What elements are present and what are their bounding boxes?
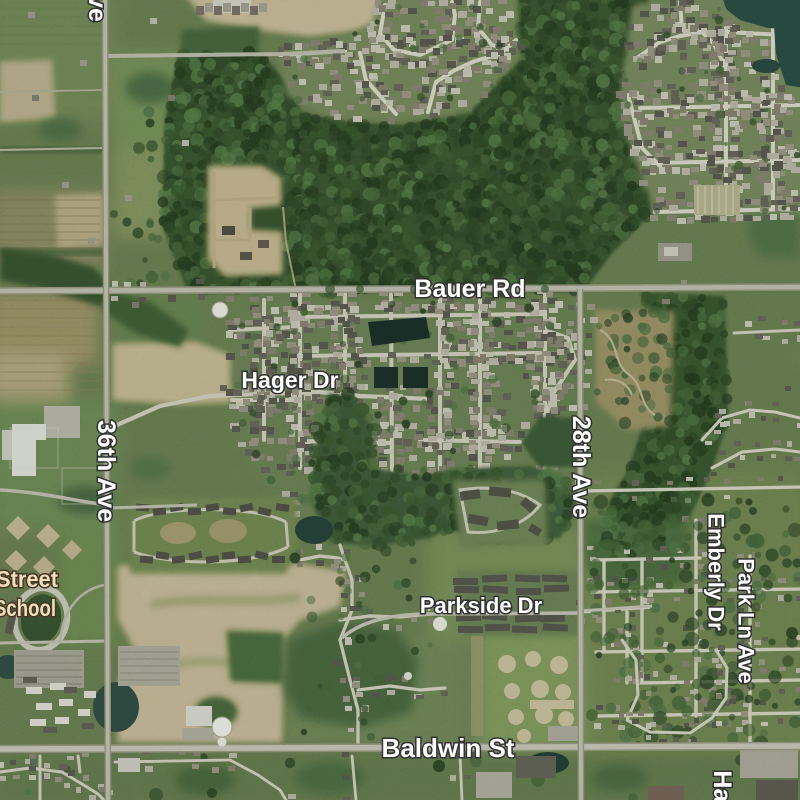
- svg-text:School: School: [0, 595, 56, 621]
- svg-text:Bauer Rd: Bauer Rd: [414, 275, 525, 303]
- svg-text:36th Ave: 36th Ave: [92, 420, 120, 522]
- svg-text:28th Ave: 28th Ave: [567, 416, 595, 518]
- svg-text:Parkside Dr: Parkside Dr: [420, 593, 543, 618]
- svg-text:Park Ln Ave: Park Ln Ave: [734, 558, 759, 684]
- svg-text:Baldwin St: Baldwin St: [382, 733, 515, 763]
- svg-text:Street: Street: [0, 566, 58, 592]
- svg-text:Hager Dr: Hager Dr: [241, 367, 338, 393]
- svg-text:Emberly Dr: Emberly Dr: [704, 513, 729, 631]
- svg-text:Han: Han: [708, 770, 736, 800]
- svg-text:ve: ve: [83, 0, 111, 22]
